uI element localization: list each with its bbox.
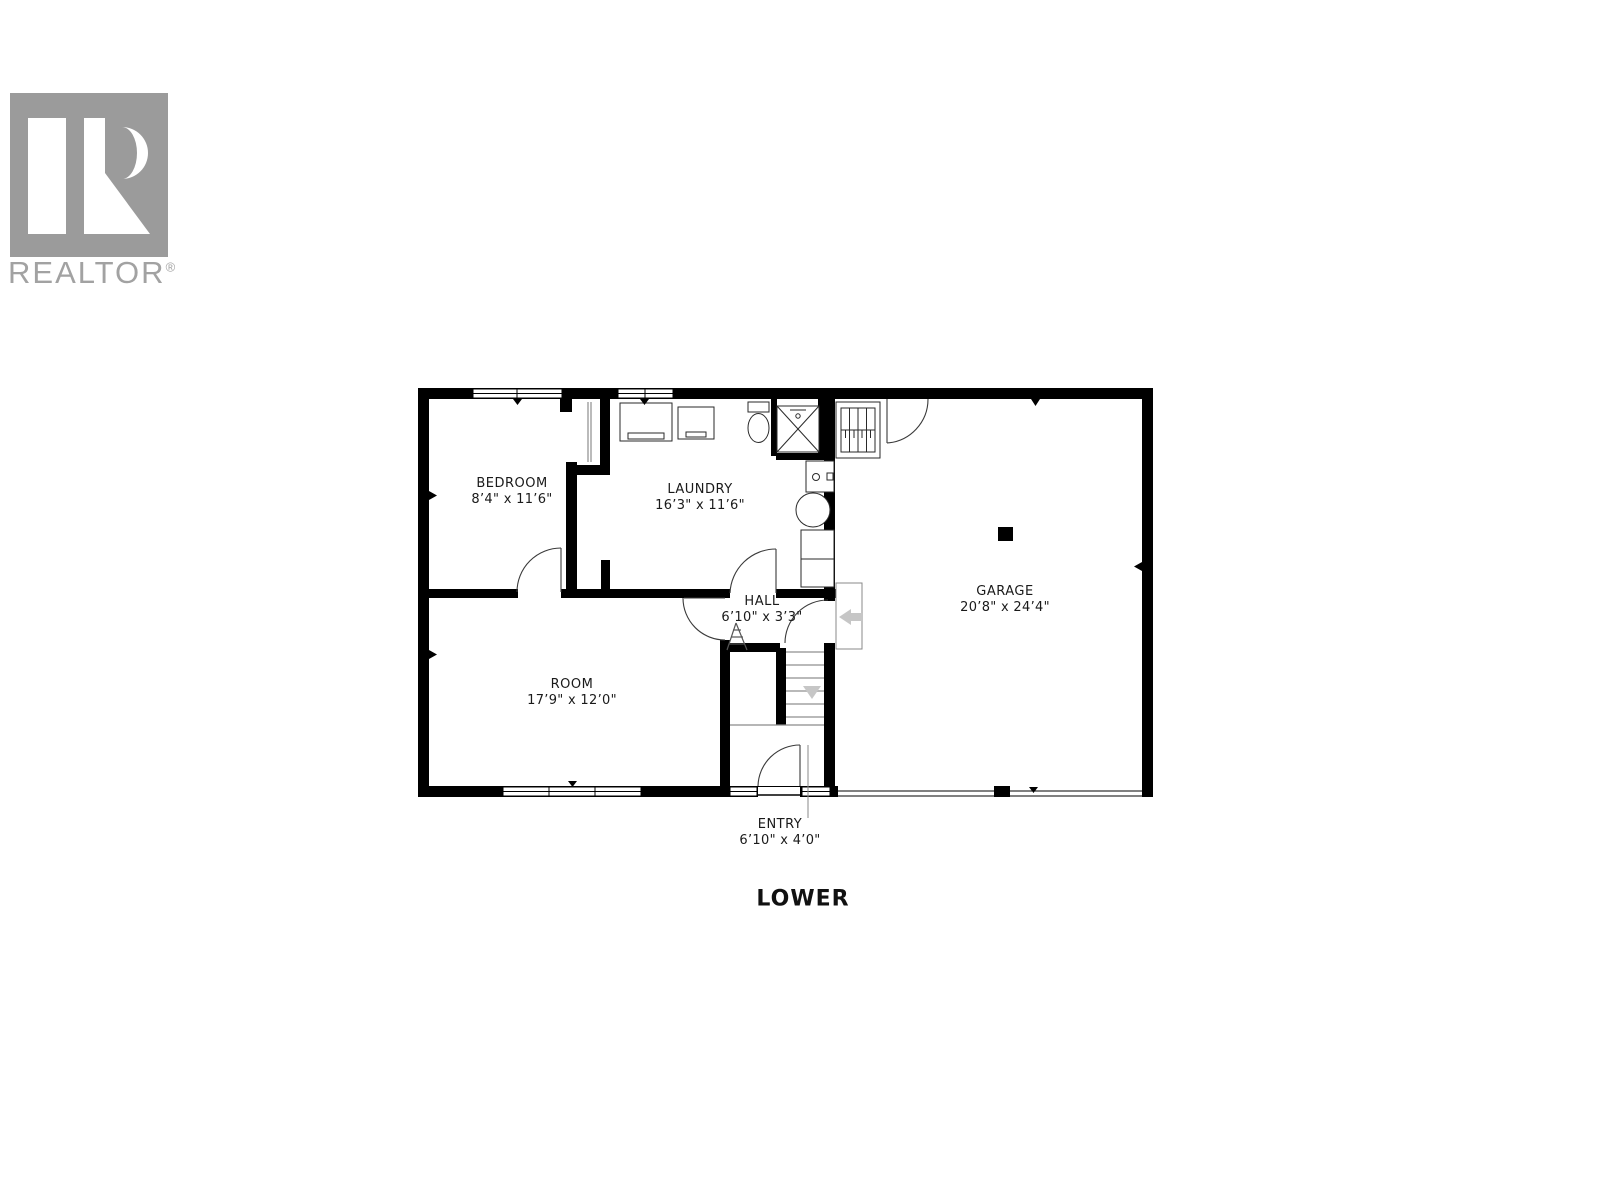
laundry-name: LAUNDRY [655,482,745,498]
front-entry-door [758,745,800,786]
registered-mark: ® [166,260,176,275]
garage-column [998,527,1013,541]
entry-label: ENTRY 6’10" x 4’0" [739,817,820,849]
bedroom-door [517,548,561,592]
hall-label: HALL 6’10" x 3’3" [721,594,802,626]
washer-icon [620,403,672,441]
garage-dims: 20’8" x 24’4" [960,600,1050,616]
garage-doors [838,791,1142,796]
garage-side-door [887,399,928,443]
stairs-down-arrow-icon [803,686,821,699]
bedroom-name: BEDROOM [471,476,552,492]
realtor-logo [10,93,168,257]
room-dims: 17’9" x 12’0" [527,693,617,709]
laundry-tub-icon [796,493,830,527]
laundry-label: LAUNDRY 16’3" x 11’6" [655,482,745,514]
entry-dims: 6’10" x 4’0" [739,833,820,849]
entry-sidelight-right [802,787,830,796]
bedroom-window [473,389,562,398]
garage-name: GARAGE [960,584,1050,600]
floor-title: LOWER [756,887,849,912]
room-name: ROOM [527,677,617,693]
laundry-window [618,389,673,398]
garage-label: GARAGE 20’8" x 24’4" [960,584,1050,616]
closet-door [588,402,591,462]
entry-sidelight-left [730,787,757,796]
laundry-sink-icon [806,461,834,492]
bedroom-label: BEDROOM 8’4" x 11’6" [471,476,552,508]
room-window [503,787,641,796]
floor-plan-page: REALTOR® [0,0,1600,1200]
laundry-dims: 16’3" x 11’6" [655,498,745,514]
shower-icon [777,406,819,452]
realtor-brand-text: REALTOR [8,255,166,290]
laundry-door [730,549,776,593]
entry-name: ENTRY [739,817,820,833]
counter [801,530,834,587]
toilet-icon [748,402,769,443]
room-label: ROOM 17’9" x 12’0" [527,677,617,709]
furnace-icon [836,402,880,458]
realtor-wordmark: REALTOR® [8,255,228,291]
hall-name: HALL [721,594,802,610]
hall-room-door [683,598,725,640]
entry-door-opening [758,787,800,797]
hall-dims: 6’10" x 3’3" [721,610,802,626]
bedroom-dims: 8’4" x 11’6" [471,492,552,508]
garage-stoop [836,583,863,649]
dryer-icon [678,407,714,439]
